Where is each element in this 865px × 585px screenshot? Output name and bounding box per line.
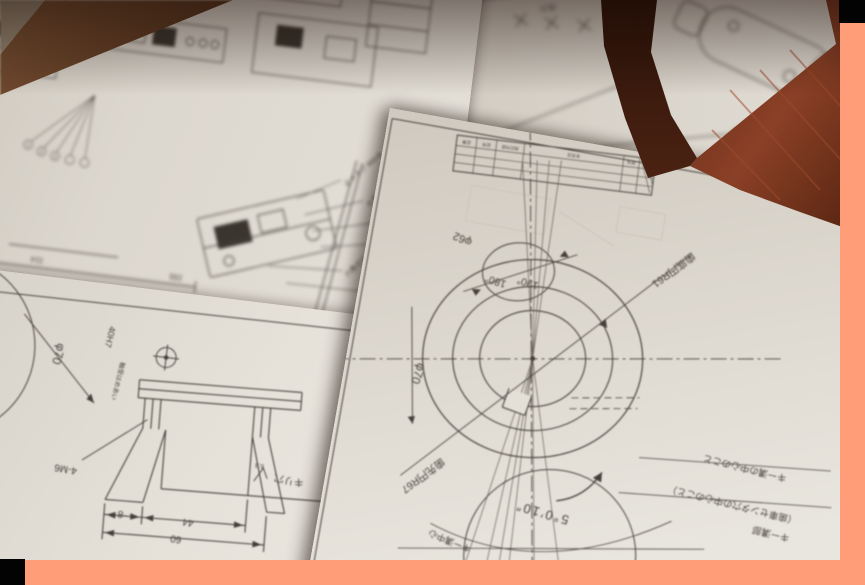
callout-gear-label: （歯車センタ穴の中心のこと） <box>666 483 798 527</box>
finish-label: 6.3 <box>254 461 264 470</box>
angle-dim-label: 5°0′10″ <box>513 498 570 528</box>
dim-label: 60 <box>169 532 182 545</box>
table-header: 年月日 <box>567 151 581 160</box>
fit-label: 40H7 <box>103 325 118 348</box>
dim-label: 44 <box>181 515 194 528</box>
cylinder-isometric <box>666 0 846 111</box>
table-header: 改訂内容 <box>501 143 520 152</box>
dia-label: φ70 <box>49 342 68 366</box>
callout-axis-label: キー溝中心 <box>427 528 473 555</box>
table-header: 担当 <box>627 159 636 167</box>
balloon-number: 3 <box>53 154 57 160</box>
balloon-number: 1 <box>26 142 30 148</box>
sheet-foreground-drawing: 記事 記号 改訂内容 年月日 担当 図番 φ62 180° 190° <box>296 108 865 585</box>
callout-center-label: キー溝の中心のこと <box>702 452 788 484</box>
tap-label: 4-M6 <box>53 461 78 476</box>
dia-bore-label: φ70 <box>408 361 428 386</box>
dim-label: 8 <box>117 508 125 520</box>
frame-corner-bottom-left <box>0 559 25 585</box>
dim-label: 35.5 <box>540 2 557 14</box>
drill-label: キリ穴 <box>273 472 305 490</box>
center-axis-horizontal <box>333 282 783 436</box>
sheet-foreground: 記事 記号 改訂内容 年月日 担当 図番 φ62 180° 190° <box>296 108 865 585</box>
dia-small-label: φ62 <box>451 229 474 248</box>
radius-upper-label: 歯底円R61 <box>649 250 697 291</box>
fit-note-label: 軸受はめあい <box>109 361 127 401</box>
table-header: 記事 <box>461 138 471 146</box>
leader-fan <box>22 87 97 167</box>
dia70-dimension: φ70 <box>15 314 104 403</box>
callout-keyway-label: キー溝部 <box>751 523 791 544</box>
callouts-right: キー溝の中心のこと （歯車センタ穴の中心のこと） キー溝部 <box>615 435 838 550</box>
angle-right-label: 190° <box>516 274 540 292</box>
datum-target <box>152 343 181 372</box>
balloon-number: 2 <box>40 149 44 155</box>
diameter-leader: 歯底円R61 歯先円R67 <box>397 207 699 539</box>
large-arc <box>0 262 45 446</box>
dim-label: 155 <box>168 271 183 282</box>
small-circle-view: φ62 <box>442 223 579 318</box>
plan-views <box>441 0 813 142</box>
bracket-isometric <box>197 190 337 278</box>
frame-bar-bottom <box>25 560 865 585</box>
frame-bar-right <box>840 23 865 585</box>
radius-lower-label: 歯先円R67 <box>399 455 447 496</box>
rotation-arrow <box>556 465 603 508</box>
dim-label: 114 <box>29 254 44 265</box>
photo-drawings-on-desk: 35.5 82 <box>0 0 865 585</box>
frame-corner-top-right <box>839 0 865 23</box>
table-header: 記号 <box>482 141 491 149</box>
bore-dimension: φ70 <box>392 307 438 425</box>
